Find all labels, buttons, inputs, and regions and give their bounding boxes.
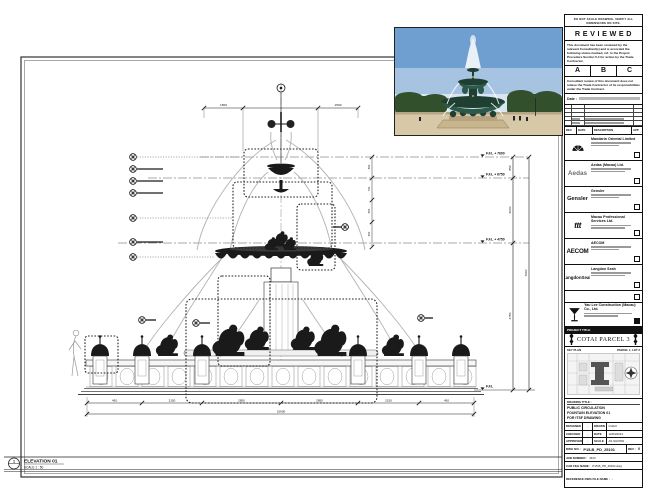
lamp-plinth	[93, 356, 107, 384]
statue-head	[303, 326, 309, 332]
lamp-finial-ball	[141, 335, 144, 338]
lamp-dome	[349, 344, 367, 356]
view-number: 1	[13, 459, 15, 463]
figure-head	[73, 330, 79, 336]
fountain-photo	[395, 28, 562, 135]
lamp-dome	[133, 344, 151, 356]
statue-hip	[283, 244, 291, 251]
dim-text: 700	[367, 186, 371, 191]
pool-panel	[168, 367, 190, 387]
keynote-center	[132, 217, 134, 219]
dim-text: 4750	[508, 312, 512, 319]
level-markers	[481, 154, 485, 390]
keynote-center	[344, 226, 346, 228]
dim-text: 1500	[220, 103, 227, 107]
pool-panel	[272, 367, 294, 387]
statue-hip	[265, 244, 273, 251]
statue-head	[316, 250, 320, 254]
statue-arm	[337, 331, 347, 345]
upper-bowl-base	[273, 189, 289, 193]
dim-text: 7600	[524, 269, 528, 276]
dim-text: 850	[367, 164, 371, 169]
lamp-finial-ball	[201, 335, 204, 338]
dim-text: 2850	[316, 399, 323, 403]
statue-head	[281, 231, 285, 235]
statue-head	[229, 325, 237, 333]
keynote-center	[141, 319, 143, 321]
dim-text: 2150	[169, 399, 176, 403]
view-scale: SCALE 1 : 50	[24, 466, 44, 470]
statue-head	[167, 334, 173, 340]
dim-text: 2150	[385, 399, 392, 403]
statue-hip	[245, 338, 259, 350]
statue-arm	[318, 254, 323, 261]
lamp-dome	[193, 344, 211, 356]
mid-basin-scallop	[215, 253, 347, 259]
pool-panel	[324, 367, 346, 387]
human-scale-figure	[69, 330, 81, 376]
statue-arm	[262, 331, 269, 342]
upper-bowl-stem	[280, 180, 283, 189]
lamp-dome	[91, 344, 109, 356]
statue-hip	[156, 345, 169, 356]
lamp-dome	[452, 344, 470, 356]
statue-arm	[292, 240, 296, 246]
lamp-plinth	[412, 356, 426, 384]
view-title: ELEVATION 01	[24, 459, 58, 465]
level-triangle	[481, 154, 485, 157]
statue-arm	[308, 331, 315, 342]
jet-arc	[285, 132, 291, 160]
jet-arc	[294, 172, 332, 250]
statue-figure	[156, 334, 178, 356]
statue-arm	[235, 331, 245, 345]
level-lines	[118, 157, 529, 243]
keynote-center	[132, 256, 134, 258]
statue-head	[290, 237, 293, 240]
dim-text: 10900	[277, 410, 286, 414]
figure-torso	[73, 336, 76, 356]
keynote-center	[132, 180, 134, 182]
dim-text: 850	[508, 165, 512, 170]
level-triangle	[481, 387, 485, 390]
dim-text: 1500	[335, 103, 342, 107]
statue-head	[257, 326, 263, 332]
keynote-center	[195, 322, 197, 324]
jet-arc	[230, 172, 268, 250]
jet-arc	[286, 140, 365, 250]
statue-arm	[283, 234, 288, 241]
lamp-finial-ball	[418, 335, 421, 338]
keynote-center	[132, 156, 134, 158]
dim-text: 650	[367, 231, 371, 236]
statue-hip	[307, 258, 317, 266]
pool-panel	[116, 367, 138, 387]
dim-text: 2850	[238, 399, 245, 403]
keynote-center	[132, 241, 134, 243]
statue-hip	[291, 338, 305, 350]
statue-figure	[382, 334, 404, 356]
keynote-center	[132, 192, 134, 194]
statue-hip	[314, 340, 333, 356]
statue-hip	[273, 239, 282, 247]
lamp-plinth	[135, 356, 149, 384]
statue-arm	[171, 339, 178, 349]
pool-panel	[376, 367, 398, 387]
level-triangle	[481, 240, 485, 243]
statue-hip	[382, 345, 395, 356]
upper-bowl-rim	[267, 164, 295, 169]
view-title-bar: 1 ELEVATION 01 SCALE 1 : 50	[4, 457, 562, 472]
keynote-center	[132, 168, 134, 170]
level-label: F.F.L + 4750	[486, 238, 505, 242]
lamp-finial-ball	[357, 335, 360, 338]
pool-panel	[298, 367, 320, 387]
figure-arms	[69, 341, 81, 350]
pool-panel	[220, 367, 242, 387]
jet-arc	[197, 140, 276, 250]
level-label: F.F.L	[486, 385, 493, 389]
upper-bowl-cup	[268, 168, 294, 175]
dim-text: 650	[367, 208, 371, 213]
level-label: F.F.L + 6750	[486, 173, 505, 177]
dim-text: 450	[112, 399, 117, 403]
level-label: F.F.L + 7600	[486, 152, 505, 156]
lamp-finial-ball	[460, 335, 463, 338]
statue-head	[393, 334, 399, 340]
figure-legs	[72, 356, 78, 376]
statue-hip	[212, 340, 231, 356]
finial-dot	[280, 87, 283, 90]
jet-arc	[337, 255, 422, 358]
lamp-plinth	[351, 356, 365, 384]
ornament-left	[268, 120, 276, 128]
reference-photo	[394, 27, 563, 136]
statue-arm	[397, 339, 404, 349]
dim-text: 2000	[508, 206, 512, 213]
pool-panel	[246, 367, 268, 387]
pool-panel	[428, 367, 450, 387]
dim-text: 450	[444, 399, 449, 403]
keynote-center	[420, 317, 422, 319]
jet-arc	[271, 132, 277, 160]
jet-arc	[140, 255, 225, 358]
statue-head	[331, 325, 339, 333]
lamp-plinth	[454, 356, 468, 384]
basin-pedestal	[271, 268, 291, 282]
ornament-right	[287, 120, 295, 128]
drawing-sheet: 1500 1500 850 2000 4750 7600 850 700 650…	[0, 0, 650, 488]
lamp-plinth	[195, 356, 209, 384]
lamp-dome	[410, 344, 428, 356]
level-triangle	[481, 175, 485, 178]
